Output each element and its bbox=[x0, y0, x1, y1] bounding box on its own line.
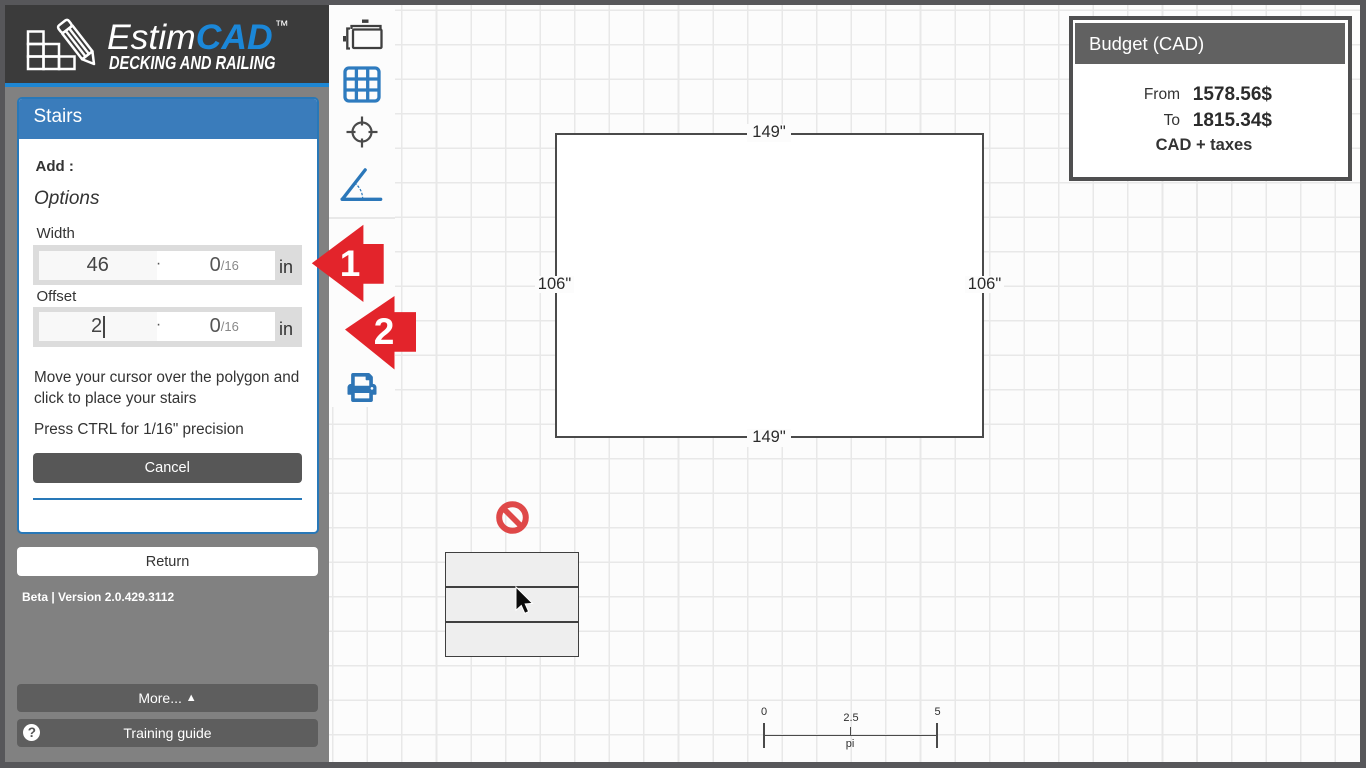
svg-text:1: 1 bbox=[340, 243, 361, 284]
svg-text:2: 2 bbox=[374, 311, 395, 352]
